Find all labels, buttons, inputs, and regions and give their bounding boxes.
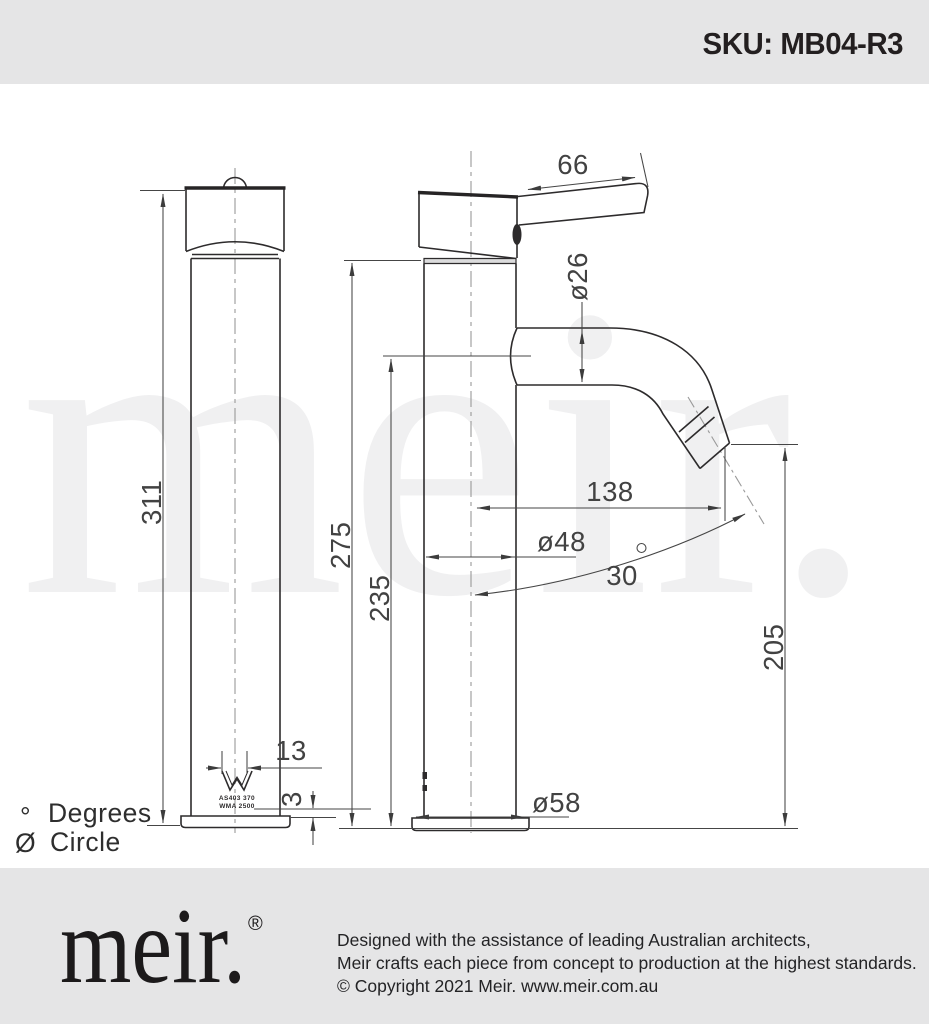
side-handle-lever <box>518 183 648 225</box>
dim-spout-angle-label: 30 <box>606 560 638 591</box>
dim-spout-centre-height-label: 235 <box>364 575 395 622</box>
cert-line-2: WMA 2500 <box>219 803 254 810</box>
aerator-band-2 <box>679 407 709 433</box>
dim-overall-height-label: 311 <box>136 480 167 525</box>
legend-degrees-label: Degrees <box>48 798 152 828</box>
spout-axis-line <box>688 397 764 524</box>
degree-ring-30 <box>637 544 646 553</box>
legend-circle-symbol: Ø <box>15 828 36 858</box>
dim-base-diameter-label: ø58 <box>532 787 581 818</box>
dimension-labels: 66 ø26 311 275 235 205 138 ø48 30 13 3 ø… <box>136 149 789 818</box>
dim-spout-reach-label: 138 <box>586 476 633 507</box>
dim-spout-diameter-label: ø26 <box>562 252 593 301</box>
symbol-legend: ° Degrees Ø Circle <box>15 798 152 858</box>
dim-outlet-height-label: 205 <box>758 624 789 671</box>
legend-circle-label: Circle <box>50 827 121 857</box>
spout-inner-edge <box>517 385 700 469</box>
spec-sheet: SKU: MB04-R3 meir. <box>0 0 929 1024</box>
brand-logo: meir. <box>60 893 246 1001</box>
dim-base-plate-height-label: 3 <box>276 791 307 807</box>
handle-pivot-pin <box>513 224 522 245</box>
dim-body-diameter-label: ø48 <box>537 526 586 557</box>
footer-line-3: © Copyright 2021 Meir. www.meir.com.au <box>337 975 917 998</box>
footer-line-1: Designed with the assistance of leading … <box>337 929 917 952</box>
dim-handle-length-label: 66 <box>557 149 589 180</box>
footer-text: Designed with the assistance of leading … <box>337 929 917 998</box>
dimension-lines <box>140 153 798 845</box>
centerlines <box>235 151 764 833</box>
registered-mark: ® <box>248 913 263 936</box>
dim-base-detail-label: 13 <box>275 735 307 766</box>
footer-line-2: Meir crafts each piece from concept to p… <box>337 952 917 975</box>
side-collar <box>424 259 516 264</box>
watermark-cert-text: AS403 370 WMA 2500 <box>219 795 255 810</box>
dim-height-under-head-label: 275 <box>325 522 356 569</box>
cert-line-1: AS403 370 <box>219 795 255 802</box>
aerator-band-1 <box>685 417 715 443</box>
side-head-bottom <box>419 247 516 259</box>
